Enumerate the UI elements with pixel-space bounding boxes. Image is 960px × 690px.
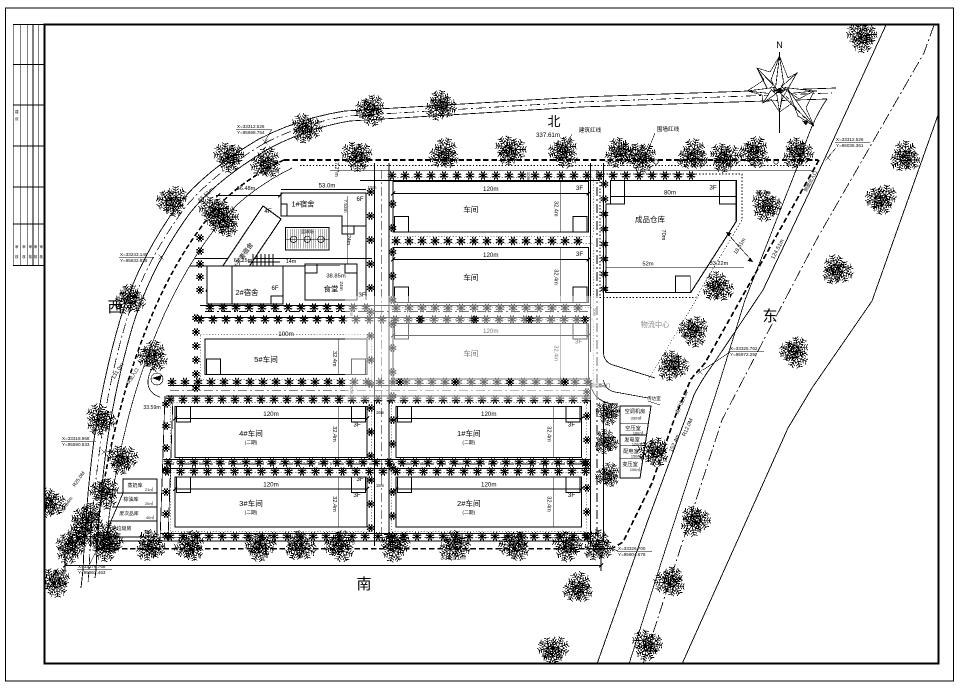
- svg-text:南: 南: [356, 576, 371, 593]
- svg-text:1#宿舍: 1#宿舍: [291, 200, 315, 209]
- svg-text:32.4m: 32.4m: [331, 426, 337, 442]
- svg-text:X=33376.768: X=33376.768: [78, 564, 106, 569]
- svg-text:6F: 6F: [356, 197, 363, 203]
- svg-text:(二期): (二期): [462, 440, 475, 446]
- svg-text:120m: 120m: [481, 482, 496, 489]
- svg-text:36.48m: 36.48m: [237, 186, 256, 192]
- svg-text:1#车间: 1#车间: [457, 428, 481, 438]
- svg-text:核: 核: [22, 254, 26, 259]
- svg-text:120m: 120m: [481, 411, 496, 418]
- svg-text:成品仓库: 成品仓库: [635, 214, 665, 224]
- svg-text:车间: 车间: [463, 272, 478, 282]
- svg-text:审: 审: [40, 244, 44, 249]
- svg-text:32.4m: 32.4m: [331, 496, 337, 512]
- svg-text:4#车间: 4#车间: [239, 428, 263, 438]
- svg-text:X=33325.762: X=33325.762: [730, 346, 758, 351]
- svg-text:38.85m: 38.85m: [326, 274, 346, 280]
- svg-text:建筑红线: 建筑红线: [579, 126, 602, 134]
- svg-text:3F: 3F: [568, 492, 575, 499]
- svg-text:X=33326.700: X=33326.700: [618, 546, 646, 551]
- svg-text:6F: 6F: [271, 286, 278, 292]
- svg-text:32.4m: 32.4m: [553, 201, 559, 217]
- svg-text:24m: 24m: [345, 235, 351, 245]
- svg-text:14m: 14m: [286, 259, 297, 265]
- svg-text:X=33312.526: X=33312.526: [237, 124, 265, 129]
- svg-text:120㎡: 120㎡: [632, 441, 642, 446]
- svg-text:2#宿舍: 2#宿舍: [235, 288, 259, 297]
- svg-text:(二期): (二期): [245, 440, 258, 446]
- svg-text:北: 北: [547, 114, 560, 129]
- svg-text:车间: 车间: [463, 204, 478, 214]
- svg-text:120m: 120m: [483, 252, 498, 259]
- svg-text:3#车间: 3#车间: [239, 498, 263, 508]
- svg-text:3F: 3F: [576, 185, 583, 192]
- svg-text:3F: 3F: [568, 422, 575, 429]
- svg-text:X=33243.145: X=33243.145: [120, 252, 148, 257]
- svg-text:Y=95563.463: Y=95563.463: [78, 570, 106, 575]
- svg-text:20㎡: 20㎡: [145, 501, 153, 506]
- svg-text:17.27m: 17.27m: [333, 159, 339, 176]
- svg-text:Y=95904.678: Y=95904.678: [618, 552, 646, 557]
- svg-text:80m: 80m: [664, 190, 676, 197]
- svg-text:(二期): (二期): [462, 510, 475, 516]
- svg-text:100㎡: 100㎡: [630, 467, 640, 472]
- svg-text:10m: 10m: [526, 172, 531, 181]
- svg-text:160㎡: 160㎡: [633, 431, 643, 436]
- svg-text:52m: 52m: [642, 262, 653, 268]
- svg-text:53.0m: 53.0m: [319, 184, 336, 190]
- svg-text:24m: 24m: [338, 281, 344, 290]
- svg-text:32.4m: 32.4m: [546, 496, 552, 512]
- svg-text:120m: 120m: [263, 482, 278, 489]
- svg-text:5#车间: 5#车间: [254, 354, 278, 364]
- svg-text:16m: 16m: [376, 410, 385, 415]
- svg-text:120m: 120m: [483, 186, 498, 193]
- svg-text:18m: 18m: [376, 483, 385, 488]
- svg-text:东: 东: [762, 308, 777, 325]
- svg-text:3F: 3F: [353, 422, 360, 429]
- svg-text:变压室: 变压室: [622, 460, 638, 468]
- svg-text:100m: 100m: [278, 331, 293, 338]
- svg-text:32.4m: 32.4m: [331, 351, 337, 367]
- svg-text:核: 核: [40, 254, 44, 259]
- svg-text:337.61m: 337.61m: [536, 132, 560, 139]
- svg-text:蒸奶库: 蒸奶库: [127, 482, 142, 489]
- svg-text:篮球场: 篮球场: [301, 228, 314, 235]
- svg-text:Y=96036.361: Y=96036.361: [836, 143, 864, 148]
- svg-text:3F: 3F: [353, 492, 360, 499]
- svg-text:西: 西: [107, 299, 122, 316]
- svg-text:Y=95972.297: Y=95972.297: [730, 352, 758, 357]
- svg-text:67.15m: 67.15m: [234, 258, 253, 264]
- svg-text:X=33312.526: X=33312.526: [836, 137, 864, 142]
- svg-text:4F: 4F: [264, 208, 271, 215]
- svg-text:X=33318.968: X=33318.968: [62, 436, 90, 441]
- svg-text:垃圾房: 垃圾房: [116, 525, 131, 532]
- svg-text:废次品库: 废次品库: [119, 510, 138, 517]
- svg-text:设: 设: [15, 116, 19, 121]
- svg-text:物流中心: 物流中心: [641, 320, 670, 329]
- svg-text:食堂: 食堂: [324, 285, 339, 294]
- svg-text:21㎡: 21㎡: [145, 487, 153, 492]
- svg-text:3F: 3F: [709, 185, 716, 192]
- svg-text:330㎡: 330㎡: [631, 415, 642, 421]
- svg-text:Y=95590.533: Y=95590.533: [62, 442, 90, 447]
- svg-text:(二期): (二期): [245, 510, 258, 516]
- svg-text:围墙红线: 围墙红线: [657, 125, 680, 133]
- svg-text:32.4m: 32.4m: [553, 269, 559, 285]
- svg-text:32.4m: 32.4m: [546, 426, 552, 442]
- svg-text:空调机房: 空调机房: [625, 407, 646, 415]
- svg-text:传达室: 传达室: [647, 395, 661, 402]
- svg-text:70m: 70m: [660, 230, 666, 241]
- svg-text:Y=95698.754: Y=95698.754: [237, 130, 265, 135]
- svg-text:40㎡: 40㎡: [146, 515, 154, 520]
- svg-text:Y=95632.938: Y=95632.938: [120, 258, 148, 263]
- svg-text:3F: 3F: [576, 251, 583, 258]
- svg-text:2#车间: 2#车间: [457, 498, 481, 508]
- svg-text:棕油库: 棕油库: [123, 496, 138, 503]
- svg-text:33.59m: 33.59m: [143, 405, 160, 411]
- svg-text:审: 审: [22, 244, 26, 249]
- svg-text:N: N: [776, 40, 783, 50]
- svg-text:33.22m: 33.22m: [710, 261, 729, 267]
- svg-text:建: 建: [15, 109, 19, 114]
- svg-text:120m: 120m: [263, 411, 278, 418]
- svg-text:3F: 3F: [356, 477, 363, 483]
